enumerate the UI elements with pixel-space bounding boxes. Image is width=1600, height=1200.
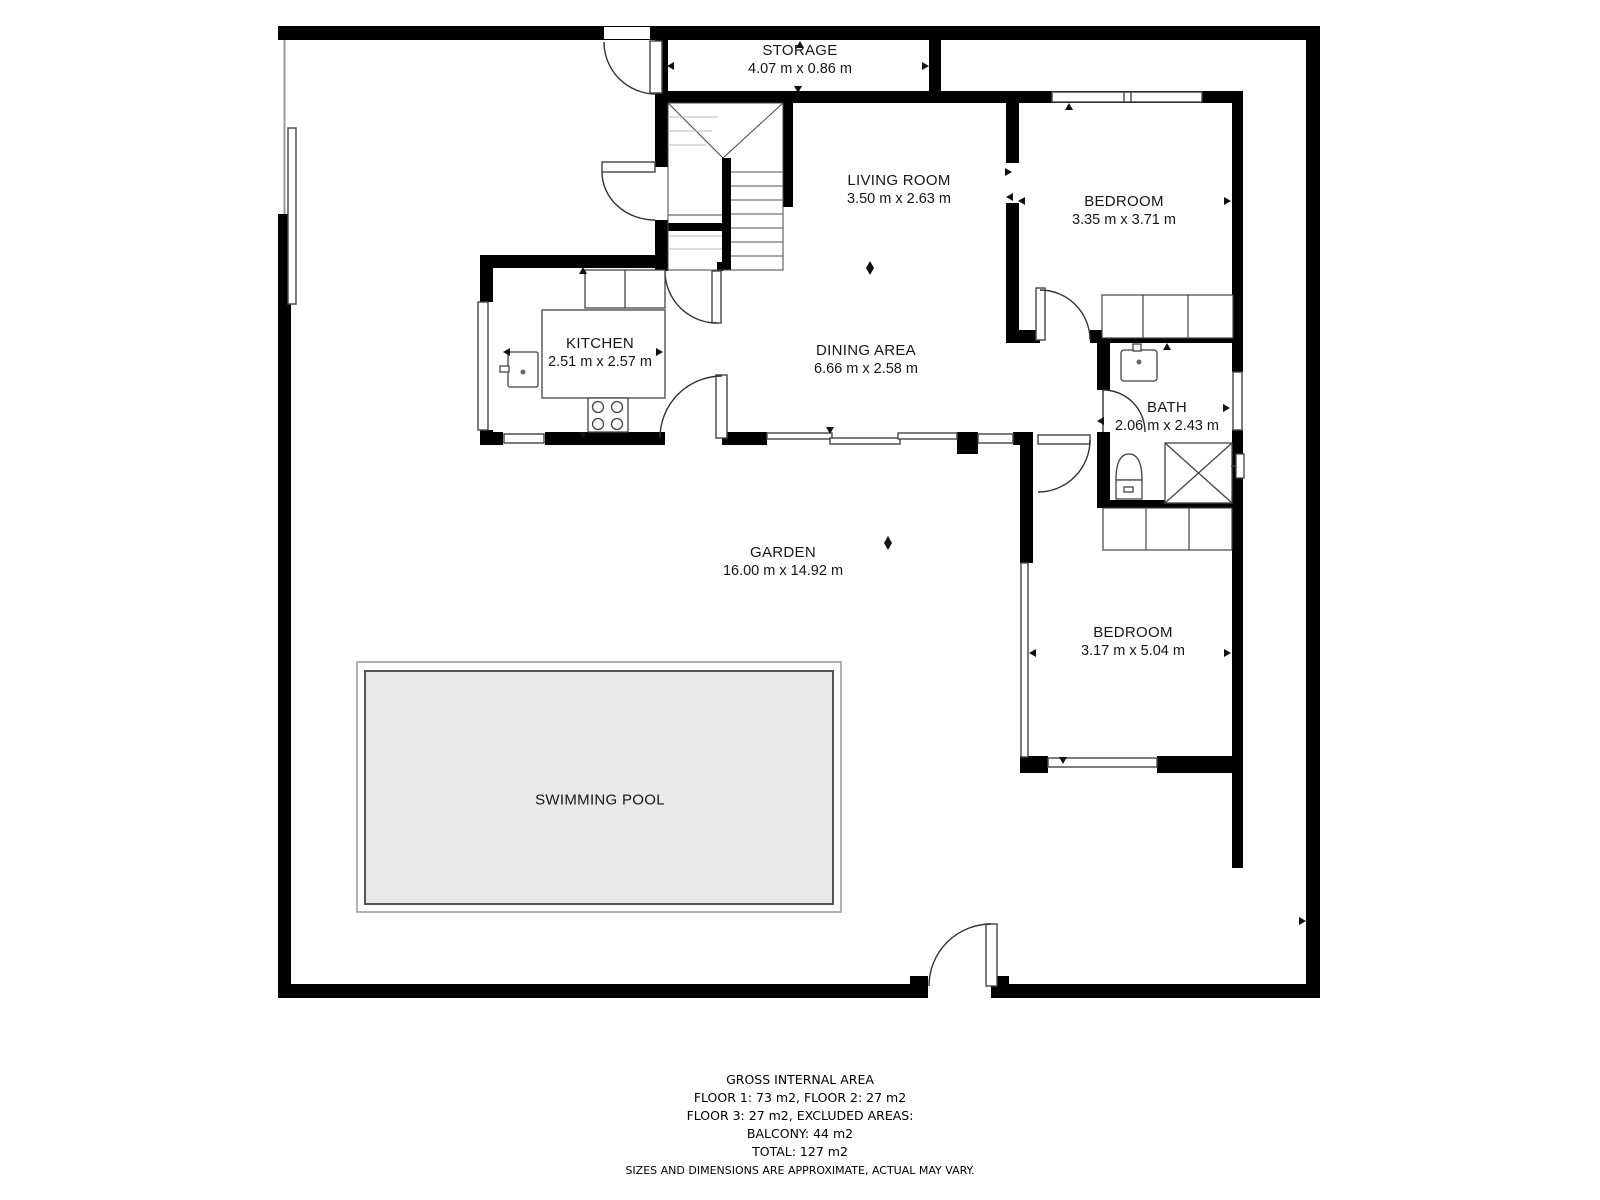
door-swing-arc [660, 376, 722, 438]
room-label-living-room: LIVING ROOM 3.50 m x 2.63 m [847, 171, 951, 209]
door-swing-arc [1038, 440, 1090, 492]
summary-line: TOTAL: 127 m2 [0, 1143, 1600, 1161]
room-dimensions: 2.06 m x 2.43 m [1115, 417, 1219, 436]
door-swing-arc [602, 172, 655, 220]
swimming-pool [357, 662, 841, 912]
door-swing-arc [665, 271, 717, 323]
summary-disclaimer: SIZES AND DIMENSIONS ARE APPROXIMATE, AC… [0, 1162, 1600, 1179]
room-name: DINING AREA [814, 341, 918, 360]
room-dimensions: 2.51 m x 2.57 m [548, 353, 652, 372]
room-name: BATH [1115, 398, 1219, 417]
area-summary: GROSS INTERNAL AREA FLOOR 1: 73 m2, FLOO… [0, 1071, 1600, 1179]
room-label-swimming-pool: SWIMMING POOL [535, 791, 665, 810]
door-swing-arc [1040, 290, 1090, 340]
summary-title: GROSS INTERNAL AREA [0, 1071, 1600, 1089]
hall-closet [1103, 508, 1232, 550]
summary-line: BALCONY: 44 m2 [0, 1125, 1600, 1143]
room-name: LIVING ROOM [847, 171, 951, 190]
bedroom-closet [1102, 295, 1233, 338]
summary-line: FLOOR 1: 73 m2, FLOOR 2: 27 m2 [0, 1089, 1600, 1107]
room-label-storage: STORAGE 4.07 m x 0.86 m [748, 41, 852, 79]
room-name: KITCHEN [548, 334, 652, 353]
room-label-bath: BATH 2.06 m x 2.43 m [1115, 398, 1219, 436]
bath-sink [1121, 350, 1157, 381]
room-dimensions: 6.66 m x 2.58 m [814, 360, 918, 379]
floor-plan: STORAGE 4.07 m x 0.86 m LIVING ROOM 3.50… [0, 0, 1600, 1200]
room-name: STORAGE [748, 41, 852, 60]
door-swing-arc [604, 42, 656, 94]
room-name: BEDROOM [1081, 623, 1185, 642]
room-dimensions: 3.17 m x 5.04 m [1081, 642, 1185, 661]
room-dimensions: 3.35 m x 3.71 m [1072, 211, 1176, 230]
floor-plan-drawing [0, 0, 1600, 1200]
room-dimensions: 4.07 m x 0.86 m [748, 60, 852, 79]
toilet [1116, 454, 1142, 480]
room-label-bedroom-1: BEDROOM 3.35 m x 3.71 m [1072, 192, 1176, 230]
door-swing-arc [929, 924, 991, 986]
room-label-kitchen: KITCHEN 2.51 m x 2.57 m [548, 334, 652, 372]
room-label-garden: GARDEN 16.00 m x 14.92 m [723, 543, 843, 581]
room-name: SWIMMING POOL [535, 791, 665, 810]
room-name: BEDROOM [1072, 192, 1176, 211]
room-dimensions: 3.50 m x 2.63 m [847, 190, 951, 209]
room-name: GARDEN [723, 543, 843, 562]
summary-line: FLOOR 3: 27 m2, EXCLUDED AREAS: [0, 1107, 1600, 1125]
room-dimensions: 16.00 m x 14.92 m [723, 562, 843, 581]
room-label-bedroom-2: BEDROOM 3.17 m x 5.04 m [1081, 623, 1185, 661]
room-label-dining-area: DINING AREA 6.66 m x 2.58 m [814, 341, 918, 379]
